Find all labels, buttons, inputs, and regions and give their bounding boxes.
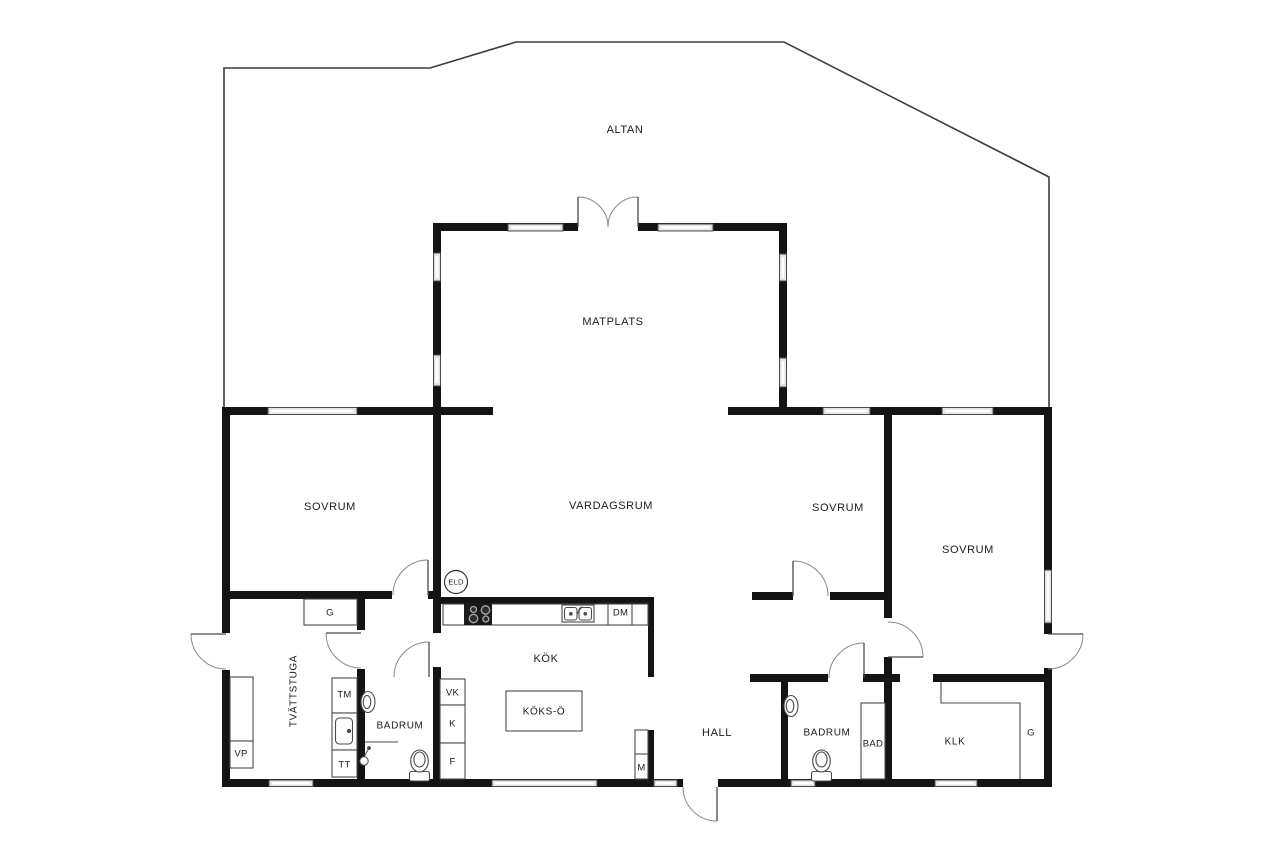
window (1045, 570, 1052, 623)
window (492, 780, 597, 787)
room-label-tvattstuga: TVÄTTSTUGA (288, 655, 300, 727)
window (434, 253, 441, 281)
room-label-klk: KLK (945, 737, 966, 748)
laundry-bench (230, 677, 253, 741)
room-label-kok: KÖK (533, 653, 558, 665)
fixture-label-eld: ELD (448, 578, 464, 587)
window (654, 780, 677, 787)
fixture-label-tm: TM (337, 690, 351, 701)
stove-icon (464, 603, 492, 625)
room-label-badrum-right: BADRUM (804, 728, 851, 739)
room-label-hall: HALL (702, 727, 732, 739)
washbasin-icon (784, 696, 798, 717)
window (823, 408, 870, 415)
room-label-sovrum-right: SOVRUM (942, 544, 994, 556)
window (269, 780, 313, 787)
fixture-label-m: M (637, 763, 645, 774)
closet-rail (941, 682, 1020, 779)
room-label-bad: BAD (863, 739, 883, 750)
fixture-label-garderob-right: G (1027, 728, 1035, 739)
room-label-altan: ALTAN (607, 124, 644, 136)
room-label-badrum-left: BADRUM (377, 721, 424, 732)
toilet-icon (812, 750, 832, 781)
fixture-label-vk: VK (446, 688, 460, 699)
washbasin-icon (361, 692, 375, 713)
altan-outline (224, 42, 1049, 407)
floorplan-drawing: ALTAN MATPLATS VARDAGSRUM SOVRUM SOVRUM … (0, 0, 1280, 853)
window (658, 224, 713, 231)
kitchen-sink-icon (562, 605, 594, 622)
fixture-label-k: K (449, 719, 456, 730)
window (780, 358, 787, 387)
fixture-label-garderob-left: G (326, 608, 334, 619)
laundry-sink-icon (332, 713, 357, 750)
window (935, 780, 977, 787)
fixture-label-f: F (449, 757, 455, 768)
fixture-label-vp: VP (234, 749, 247, 760)
window (268, 408, 357, 415)
toilet-icon (410, 750, 430, 781)
window (942, 408, 993, 415)
windows (268, 224, 1052, 787)
room-label-sovrum-left: SOVRUM (304, 501, 356, 513)
floorplan-page: ALTAN MATPLATS VARDAGSRUM SOVRUM SOVRUM … (0, 0, 1280, 853)
fixture-label-dm: DM (613, 608, 628, 619)
window (508, 224, 563, 231)
room-label-koks-o: KÖKS-Ö (523, 706, 566, 718)
window (434, 355, 441, 386)
room-label-matplats: MATPLATS (582, 316, 643, 328)
window (780, 254, 787, 281)
window (791, 780, 815, 787)
room-label-vardagsrum: VARDAGSRUM (569, 500, 653, 512)
room-label-sovrum-mid: SOVRUM (812, 502, 864, 514)
fixture-label-tt: TT (338, 760, 350, 771)
